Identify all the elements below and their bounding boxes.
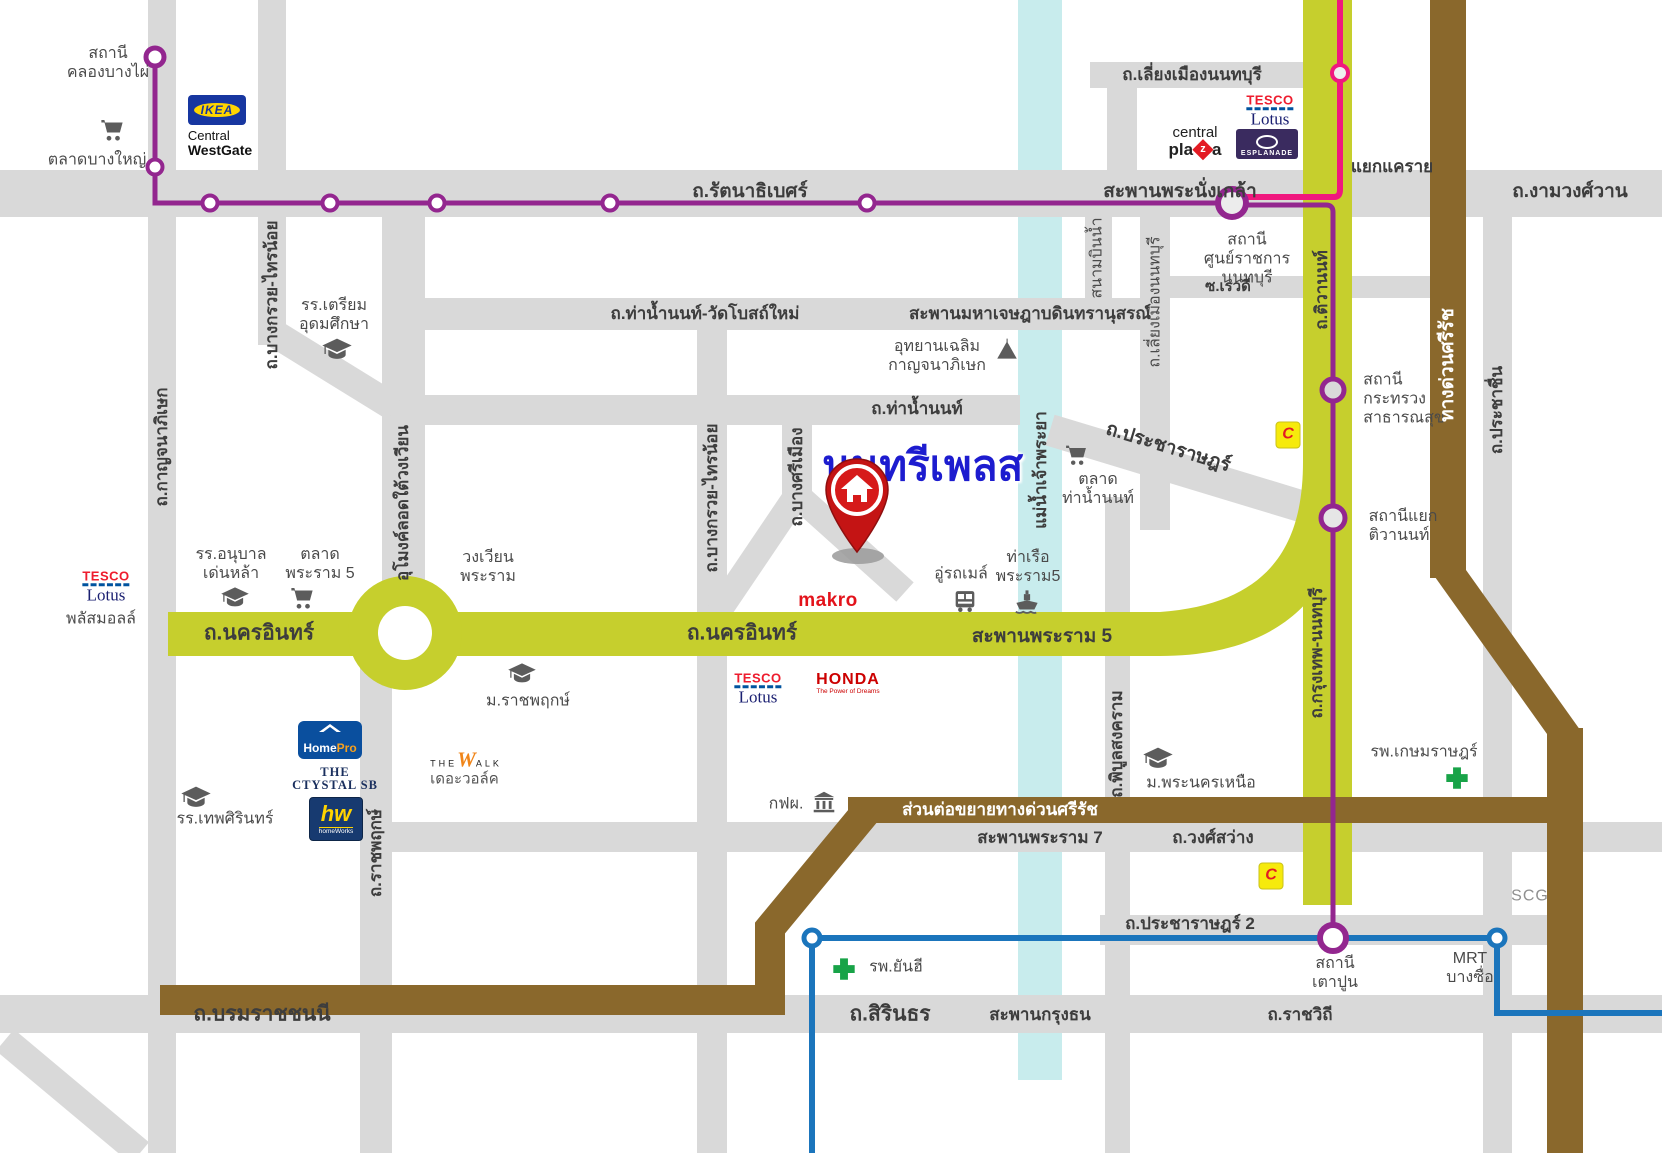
nakhon-in-label-west: ถ.นครอินทร์: [204, 622, 314, 647]
bangkruai-sainoi-mid-label: ถ.บางกรวย-ไทรน้อย: [702, 424, 722, 573]
central-plaza-logo: central pla z a: [1168, 125, 1221, 159]
station-khlong-bang-phai-label: สถานี คลองบางไผ่: [67, 45, 149, 83]
talat-rama5-label: ตลาด พระราม 5: [285, 546, 354, 584]
krungthon-bridge-label: สะพานกรุงธน: [989, 1005, 1091, 1025]
graduation-cap-icon: [507, 659, 537, 689]
central-plaza-line1: central: [1168, 125, 1221, 141]
hospital-cross-icon: [831, 956, 858, 983]
cart-icon: [287, 583, 317, 613]
thanamnon-watbotmai-label: ถ.ท่าน้ำนนท์-วัดโบสถ์ใหม่: [611, 304, 800, 324]
lotus-text: Lotus: [1246, 110, 1293, 128]
tiwanon-label: ถ.ติวานนท์: [1312, 250, 1332, 330]
station-ministry-health-label: สถานี กระทรวง สาธารณสุข: [1363, 372, 1445, 429]
hospital-cross-icon: [1444, 765, 1471, 792]
sirat-expressway-label: ทางด่วนศรีรัช: [1437, 308, 1459, 422]
borommaratchachonnani-label: ถ.บรมราชชนนี: [193, 1003, 330, 1028]
ikea-logo-text: IKEA: [194, 103, 241, 118]
central-westgate-line1: Central: [188, 129, 252, 143]
the-walk-logo: THEWALK เดอะวอล์ค: [430, 749, 502, 788]
egat-label: กฟผ.: [769, 796, 804, 815]
denla-school-label: รร.อนุบาล เด่นหล้า: [195, 546, 266, 584]
ratchaphruek-label: ถ.ราชพฤกษ์: [366, 809, 386, 897]
bus-icon: [951, 587, 979, 615]
tunnel-wongwian-label: อุโมงค์ลอดใต้วงเวียน: [393, 425, 413, 581]
the-crystal-sb-label: THE CTYSTAL SB: [292, 766, 378, 792]
esplanade-mask-icon: [1256, 135, 1278, 149]
sirinthon-label: ถ.สิรินธร: [849, 1003, 930, 1028]
bangkruai-sainoi-north-label: ถ.บางกรวย-ไทรน้อย: [262, 221, 282, 370]
phra-nangklao-bridge-label: สะพานพระนั่งเกล้า: [1103, 181, 1257, 203]
tesco-lotus-logo-top: TESCO Lotus: [1246, 92, 1293, 127]
bangsimueang-label: ถ.บางศรีเมือง: [787, 427, 807, 526]
graduation-cap-icon: [220, 583, 250, 613]
kasemrad-hospital-label: รพ.เกษมราษฎร์: [1370, 744, 1477, 763]
kanchanaphisek-label: ถ.กาญจนาภิเษก: [152, 388, 172, 507]
esplanade-logo: ESPLANADE: [1236, 129, 1298, 159]
honda-wordmark: HONDA: [816, 672, 880, 689]
talat-thanamnon-label: ตลาด ท่าน้ำนนท์: [1062, 471, 1134, 509]
central-plaza-z-diamond: z: [1192, 139, 1213, 160]
central-plaza-a: a: [1212, 141, 1221, 159]
honda-tagline: The Power of Dreams: [816, 689, 880, 696]
prachachuen-label: ถ.ประชาชื่น: [1487, 366, 1507, 454]
thepsirin-school-label: รร.เทพศิรินทร์: [176, 811, 273, 830]
ratchawithi-label: ถ.ราชวิถี: [1267, 1005, 1332, 1025]
graduation-cap-icon: [321, 334, 353, 366]
ngamwongwan-label: ถ.งามวงศ์วาน: [1512, 181, 1628, 203]
rama5-pier-label: ท่าเรือ พระราม5: [996, 549, 1061, 587]
the-walk-thai: เดอะวอล์ค: [430, 772, 502, 788]
station-yaek-tiwanon-label: สถานีแยก ติวานนท์: [1369, 508, 1438, 546]
government-building-icon: [811, 789, 837, 815]
phibun-songkhram-label: ถ.พิบูลสงคราม: [1107, 690, 1127, 797]
triam-udom-label: รร.เตรียม อุดมศึกษา: [299, 297, 369, 335]
sanambinnam-label: สนามบินน้ำ: [1089, 217, 1108, 298]
liang-mueang-top-label: ถ.เลี่ยงเมืองนนทบุรี: [1122, 65, 1261, 85]
homeworks-logo: hw homeWorks: [309, 797, 363, 841]
ship-icon: [1012, 586, 1042, 616]
central-westgate-logo: Central WestGate: [188, 129, 252, 157]
scg-label: SCG: [1511, 889, 1549, 906]
rama5-bridge-label: สะพานพระราม 5: [972, 626, 1112, 648]
graduation-cap-icon: [1142, 743, 1174, 775]
tesco-text: TESCO: [1246, 93, 1293, 110]
honda-logo: HONDA The Power of Dreams: [816, 672, 880, 696]
homepro-roof-inner: [322, 727, 338, 733]
big-c-icon: C: [1276, 422, 1301, 449]
tesco-lotus-logo-center: TESCO Lotus: [734, 670, 781, 705]
esplanade-text: ESPLANADE: [1241, 150, 1293, 157]
wongwian-phra-ram-label: วงเวียน พระราม: [460, 549, 516, 587]
rama7-bridge-label: สะพานพระราม 7: [977, 828, 1102, 848]
bus-depot-label: อู่รถเมล์: [934, 566, 988, 585]
rajapruk-univ-label: ม.ราชพฤกษ์: [486, 693, 570, 712]
ikea-logo: IKEA: [188, 95, 246, 125]
wongsawang-label: ถ.วงศ์สว่าง: [1172, 828, 1253, 848]
cart-icon: [97, 115, 127, 145]
makro-logo: makro: [798, 591, 858, 611]
graduation-cap-icon: [180, 782, 212, 814]
park-mountain-icon: [994, 337, 1020, 363]
central-plaza-pla: pla: [1168, 141, 1193, 159]
mrt-bang-sue-label: MRT บางซื่อ: [1446, 950, 1493, 988]
river-label: แม่น้ำเจ้าพระยา: [1031, 411, 1051, 529]
yanhee-hospital-label: รพ.ยันฮี: [869, 959, 923, 978]
pracharat2-label: ถ.ประชาราษฎร์ 2: [1125, 914, 1255, 934]
central-westgate-line2: WestGate: [188, 142, 252, 157]
location-pin: [820, 455, 894, 572]
phranakhon-nuea-label: ม.พระนครเหนือ: [1146, 775, 1256, 794]
liang-mueang-vert-label: ถ.เลี่ยงเมืองนนทบุรี: [1147, 236, 1166, 367]
map-canvas: สถานี คลองบางไผ่ ตลาดบางใหญ่ IKEA Centra…: [0, 0, 1662, 1153]
central-plaza-line2: pla z a: [1168, 141, 1221, 159]
homepro-logo: HomePro: [298, 721, 362, 759]
station-tao-poon-label: สถานี เตาปูน: [1312, 955, 1358, 993]
soi-rewadee-label: ซ.เรวดี: [1205, 278, 1251, 296]
rattanathibet-label: ถ.รัตนาธิเบศร์: [692, 181, 807, 203]
cart-icon: [1062, 441, 1090, 469]
tesco-lotus-plus-mall-logo: TESCO Lotus: [82, 568, 129, 603]
maha-chesadabodin-label: สะพานมหาเจษฎาบดินทรานุสรณ์: [909, 304, 1151, 324]
plus-mall-label: พลัสมอลล์: [66, 611, 136, 630]
krungthep-nonthaburi-label: ถ.กรุงเทพ-นนทบุรี: [1307, 588, 1327, 719]
chaloem-park-label: อุทยานเฉลิม กาญจนาภิเษก: [888, 338, 986, 376]
big-c-icon: C: [1259, 863, 1284, 890]
talat-bang-yai-label: ตลาดบางใหญ่: [48, 152, 147, 171]
thanamnon-label: ถ.ท่าน้ำนนท์: [871, 399, 962, 419]
nakhon-in-label-center: ถ.นครอินทร์: [687, 622, 797, 647]
sirat-extension-label: ส่วนต่อขยายทางด่วนศรีรัช: [902, 800, 1098, 820]
yaek-khae-rai-label: แยกแคราย: [1351, 157, 1433, 177]
